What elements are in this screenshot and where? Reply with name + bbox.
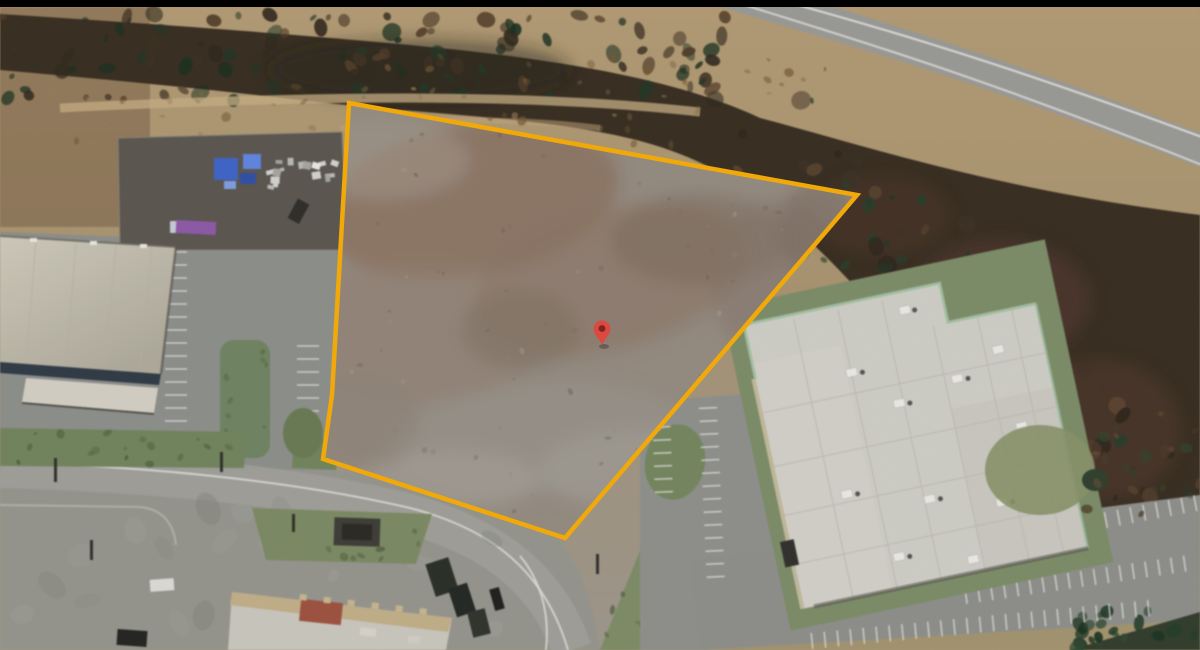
photo-grain (0, 0, 1200, 650)
satellite-imagery (0, 0, 1200, 650)
letterbox-top (0, 0, 1200, 7)
map-canvas[interactable] (0, 0, 1200, 650)
